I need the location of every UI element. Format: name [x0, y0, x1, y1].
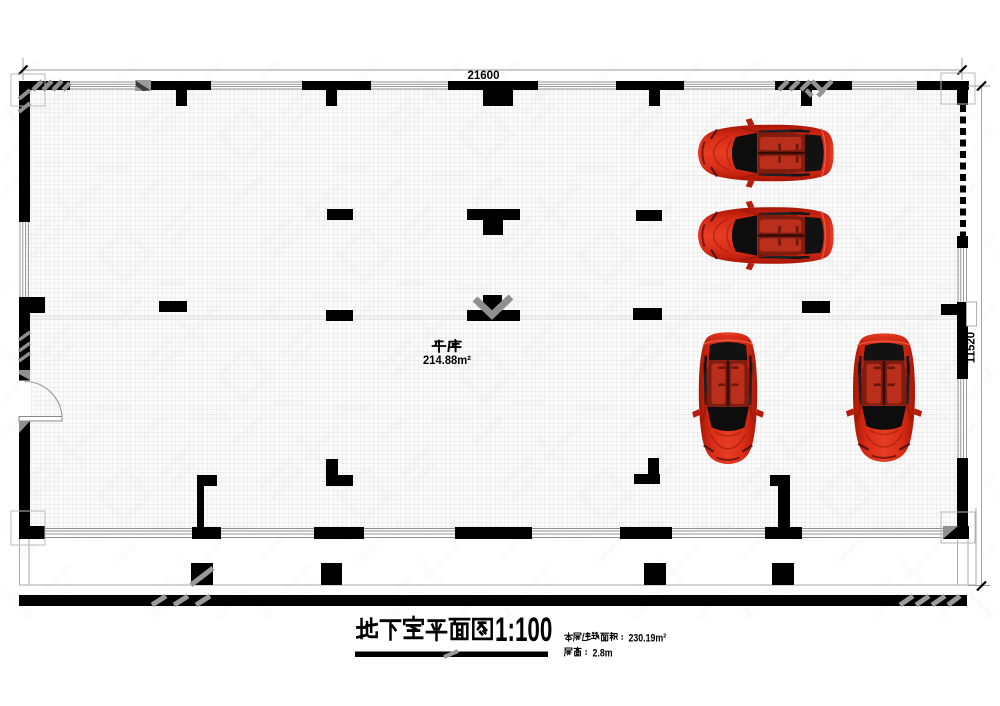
- svg-text:1:100: 1:100: [495, 611, 552, 649]
- svg-text:230.19m²: 230.19m²: [629, 633, 667, 645]
- svg-text:11520: 11520: [966, 332, 978, 363]
- svg-text:214.88m²: 214.88m²: [423, 354, 471, 368]
- svg-text:2.8m: 2.8m: [593, 648, 613, 660]
- svg-text:21600: 21600: [468, 70, 500, 82]
